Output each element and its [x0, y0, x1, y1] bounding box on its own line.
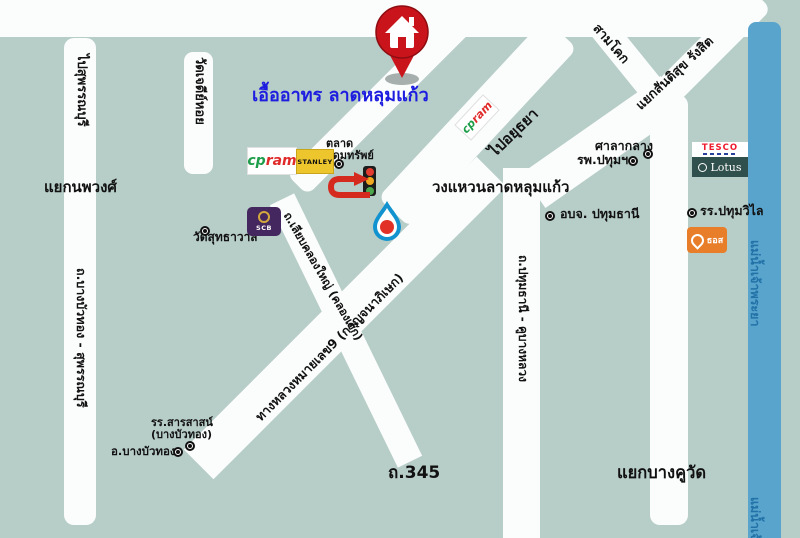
tesco-wordmark: TESCO — [692, 142, 748, 157]
u-turn-arrow-icon — [326, 172, 372, 202]
tesco-lotus-logo: TESCO Lotus — [692, 142, 748, 177]
stanley-logo: STANLEY — [296, 149, 334, 174]
poi-dot-hospital — [628, 156, 638, 166]
scb-bank-logo: SCB — [247, 207, 281, 236]
ghbank-logo: ธอส — [687, 227, 727, 253]
poi-dot-wat-sutthawat — [200, 226, 210, 236]
scb-text: SCB — [256, 224, 272, 232]
cpram-cp-text: cp — [247, 153, 265, 169]
landmark-pao-pathum: อบจ. ปทุมธานี — [560, 207, 639, 221]
poi-dot-pathum-wilai — [687, 208, 697, 218]
road-label-345: ถ.345 — [388, 464, 440, 483]
landmark-pathum-hospital: รพ.ปทุมฯ — [577, 153, 628, 167]
landmark-amphoe-bang-bua-thong: อ.บางบัวทอง — [111, 445, 176, 458]
river-name-label: แม่น้ำเจ้าพระยา — [745, 240, 765, 327]
junction-label-bang-khu-wat: แยกบางคูวัด — [617, 464, 706, 482]
road-label-ring: วงแหวนลาดหลุมแก้ว — [432, 179, 569, 196]
landmark-pathum-wilai-school: รร.ปทุมวิไล — [700, 204, 764, 218]
lotus-circle-icon — [698, 163, 707, 172]
landmark-sarasas-line2: (บางบัวทอง) — [151, 429, 213, 441]
road-label-pathum-khubangluang: ถ.ปทุมธานี - คูบางหลวง — [516, 255, 529, 382]
river-name-label-partial: แม่น้ำเจ้าพระยา — [745, 497, 765, 538]
ghbank-swirl-icon — [688, 231, 706, 249]
tesco-text: TESCO — [702, 144, 738, 153]
poi-dot-bang-bua-thong — [173, 447, 183, 457]
poi-dot-market — [334, 159, 344, 169]
poi-dot-city-hall — [643, 149, 653, 159]
scb-emblem-icon — [258, 211, 270, 223]
road-label-wat-chedi-hoi: วัดเจดีย์หอย — [192, 57, 206, 125]
destination-pin-icon — [374, 2, 430, 88]
ghbank-text: ธอส — [707, 233, 723, 247]
cpram-ram-text: ram — [266, 153, 297, 169]
location-map: แม่น้ำเจ้าพระยา แม่น้ำเจ้าพระยา แยกนพวงศ… — [0, 0, 800, 538]
road-bang-khu-wat-vertical — [650, 95, 688, 525]
road-label-to-suphanburi: ไปสุพรรณบุรี — [74, 54, 88, 127]
poi-dot-sarasas — [185, 441, 195, 451]
junction-label-nopphawong: แยกนพวงศ์ — [44, 179, 117, 196]
cpram-logo: cpram — [247, 147, 297, 175]
poi-dot-pao — [545, 211, 555, 221]
lotus-wordmark: Lotus — [692, 157, 748, 177]
road-label-bbt-suphanburi: ถ.บางบัวทอง - สุพรรณบุรี — [74, 268, 88, 408]
landmark-sarasas-school: รร.สารสาสน์ (บางบัวทอง) — [151, 417, 213, 442]
tesco-dashes-decoration — [703, 153, 737, 155]
lotus-text: Lotus — [710, 161, 741, 174]
ptt-gas-station-icon — [369, 200, 405, 242]
